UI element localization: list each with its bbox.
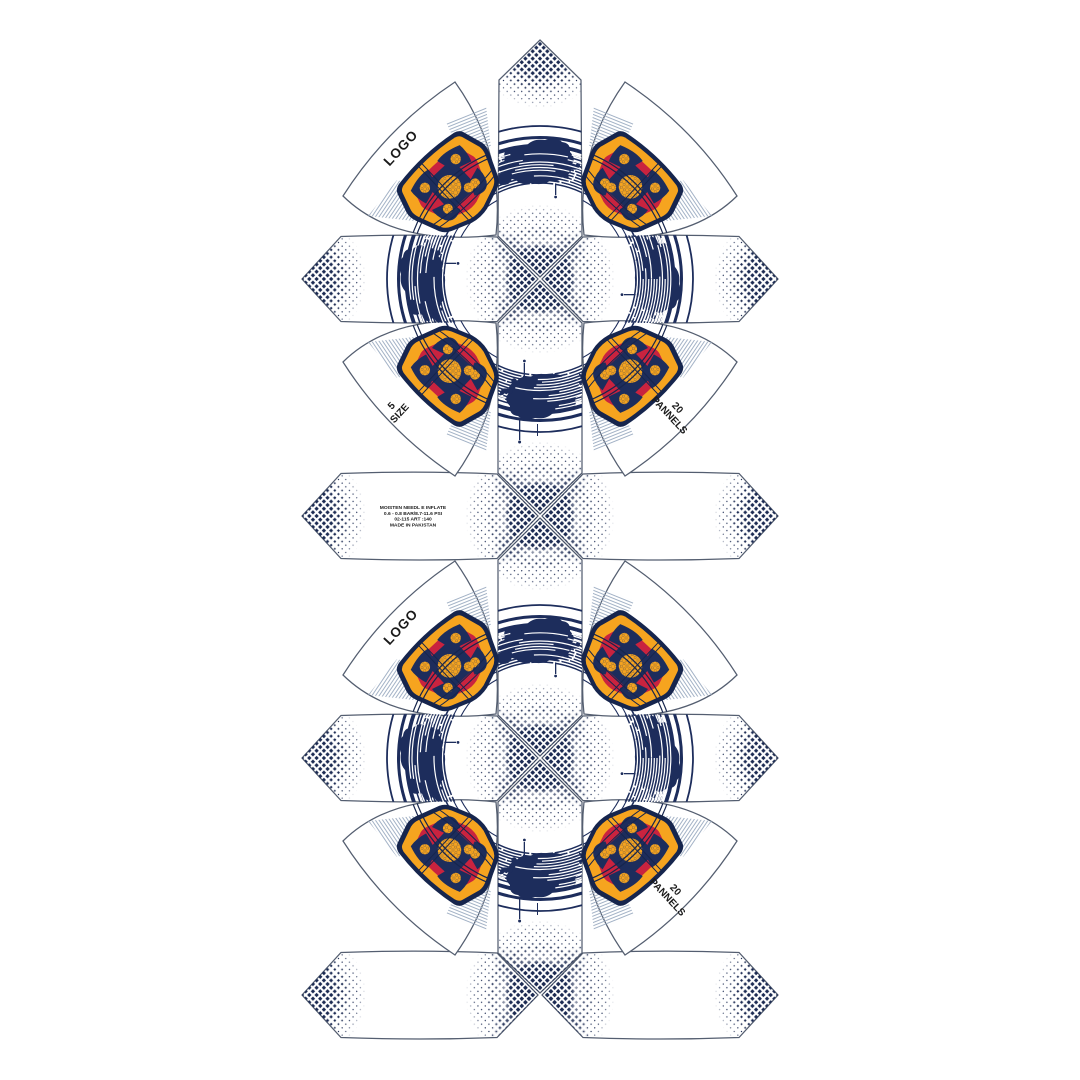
svg-text:MADE IN PAKISTAN: MADE IN PAKISTAN xyxy=(390,522,437,528)
svg-text:0.6 - 0.8 BAR/8.7-11.6 PSI: 0.6 - 0.8 BAR/8.7-11.6 PSI xyxy=(384,511,443,517)
svg-text:MOISTEN NEEDL E INFLATE: MOISTEN NEEDL E INFLATE xyxy=(380,505,447,511)
svg-text:02-115 ART :140: 02-115 ART :140 xyxy=(394,517,432,523)
